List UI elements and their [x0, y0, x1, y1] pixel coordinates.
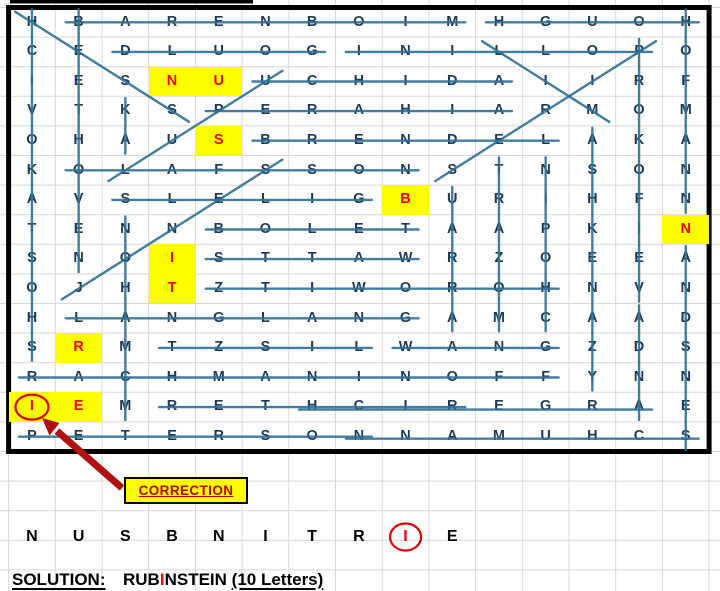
grid-cell[interactable]: B — [55, 8, 102, 38]
solution-letter: I — [242, 523, 289, 551]
grid-cell[interactable]: S — [242, 156, 289, 186]
grid-cell[interactable]: I — [9, 67, 56, 97]
grid-cell[interactable]: T — [149, 274, 196, 304]
grid-cell[interactable]: F — [616, 185, 663, 215]
grid-cell[interactable]: Z — [195, 274, 242, 304]
grid-cell[interactable]: M — [662, 96, 709, 126]
grid-cell[interactable]: C — [336, 392, 383, 422]
solution-letter: U — [55, 523, 102, 551]
grid-cell[interactable]: A — [616, 392, 663, 422]
grid-cell[interactable]: E — [55, 37, 102, 67]
grid-cell[interactable]: S — [195, 126, 242, 156]
grid-cell[interactable]: L — [242, 304, 289, 334]
grid-cell[interactable]: O — [382, 274, 429, 304]
grid-cell[interactable]: N — [55, 244, 102, 274]
grid-cell[interactable]: M — [476, 422, 523, 452]
grid-cell[interactable]: R — [289, 126, 336, 156]
grid-cell[interactable]: P — [195, 96, 242, 126]
grid-cell[interactable]: A — [9, 185, 56, 215]
grid-cell[interactable]: H — [55, 126, 102, 156]
grid-cell[interactable]: B — [382, 185, 429, 215]
grid-cell[interactable]: T — [242, 274, 289, 304]
grid-cell[interactable]: H — [476, 8, 523, 38]
grid-cell[interactable]: N — [382, 126, 429, 156]
grid-cell[interactable]: I — [289, 185, 336, 215]
grid-cell[interactable]: A — [336, 96, 383, 126]
grid-cell[interactable]: I — [382, 392, 429, 422]
grid-cell[interactable]: E — [55, 392, 102, 422]
grid-cell[interactable]: N — [336, 422, 383, 452]
grid-cell[interactable]: D — [662, 304, 709, 334]
grid-cell[interactable]: L — [149, 185, 196, 215]
grid-cell[interactable]: V — [9, 96, 56, 126]
solution-answer-part1: RUB — [123, 570, 160, 589]
grid-cell[interactable]: L — [289, 215, 336, 245]
grid-cell[interactable]: R — [195, 422, 242, 452]
grid-cell[interactable]: N — [662, 274, 709, 304]
grid-cell[interactable]: E — [149, 422, 196, 452]
grid-cell[interactable]: R — [9, 363, 56, 393]
grid-cell[interactable]: L — [55, 304, 102, 334]
grid-cell[interactable]: W — [382, 244, 429, 274]
grid-cell[interactable]: O — [662, 37, 709, 67]
grid-cell[interactable]: L — [522, 126, 569, 156]
correction-label[interactable]: CORRECTION — [124, 477, 248, 504]
grid-cell[interactable]: A — [102, 304, 149, 334]
grid-cell[interactable]: E — [616, 244, 663, 274]
grid-cell[interactable]: E — [476, 126, 523, 156]
grid-cell[interactable]: Z — [476, 244, 523, 274]
solution-letter-count: (10 Letters) — [232, 570, 324, 589]
grid-cell[interactable]: H — [662, 8, 709, 38]
grid-cell[interactable]: C — [522, 304, 569, 334]
grid-cell[interactable]: N — [476, 333, 523, 363]
grid-cell[interactable]: O — [522, 244, 569, 274]
grid-cell[interactable]: W — [382, 333, 429, 363]
grid-cell[interactable]: L — [242, 185, 289, 215]
grid-cell[interactable]: P — [9, 422, 56, 452]
grid-cell[interactable]: F — [476, 363, 523, 393]
grid-cell[interactable]: L — [336, 333, 383, 363]
grid-cell[interactable]: N — [662, 363, 709, 393]
grid-cell[interactable]: E — [476, 392, 523, 422]
grid-cell[interactable]: T — [9, 215, 56, 245]
grid-cell[interactable]: H — [382, 96, 429, 126]
grid-cell[interactable]: I — [289, 274, 336, 304]
grid-cell[interactable]: U — [242, 67, 289, 97]
grid-cell[interactable]: O — [9, 274, 56, 304]
grid-cell[interactable]: O — [9, 126, 56, 156]
grid-cell[interactable]: O — [616, 8, 663, 38]
grid-cell[interactable]: N — [616, 363, 663, 393]
grid-cell[interactable]: E — [195, 185, 242, 215]
grid-cell[interactable]: A — [569, 304, 616, 334]
grid-cell[interactable]: A — [429, 422, 476, 452]
grid-cell[interactable]: S — [102, 67, 149, 97]
grid-cell[interactable]: A — [476, 67, 523, 97]
grid-cell[interactable]: L — [522, 37, 569, 67]
grid-cell[interactable]: U — [522, 422, 569, 452]
grid-cell[interactable]: I — [616, 215, 663, 245]
grid-cell[interactable]: E — [336, 215, 383, 245]
grid-cell[interactable]: C — [102, 363, 149, 393]
grid-cell[interactable]: E — [569, 244, 616, 274]
grid-cell[interactable]: N — [336, 304, 383, 334]
grid-cell[interactable]: E — [242, 96, 289, 126]
top-edge-fragment — [10, 0, 253, 4]
grid-cell[interactable]: E — [55, 215, 102, 245]
grid-cell[interactable]: R — [569, 392, 616, 422]
grid-cell[interactable]: O — [616, 156, 663, 186]
grid-cell[interactable]: A — [429, 304, 476, 334]
grid-cell[interactable]: I — [336, 37, 383, 67]
grid-cell[interactable]: S — [9, 333, 56, 363]
grid-cell[interactable]: N — [242, 8, 289, 38]
grid-cell[interactable]: S — [149, 96, 196, 126]
grid-cell[interactable]: I — [569, 67, 616, 97]
grid-cell[interactable]: R — [149, 392, 196, 422]
grid-cell[interactable]: I — [9, 392, 56, 422]
grid-cell[interactable]: S — [569, 156, 616, 186]
grid-cell[interactable]: S — [662, 422, 709, 452]
grid-cell[interactable]: O — [289, 422, 336, 452]
grid-cell[interactable]: M — [569, 96, 616, 126]
grid-cell[interactable]: N — [522, 156, 569, 186]
grid-cell[interactable]: K — [616, 126, 663, 156]
grid-cell[interactable]: L — [149, 37, 196, 67]
grid-cell[interactable]: S — [9, 244, 56, 274]
grid-cell[interactable]: H — [149, 363, 196, 393]
grid-cell[interactable]: T — [55, 96, 102, 126]
grid-cell[interactable]: S — [662, 333, 709, 363]
worksheet-canvas: HBARENBOIMHGUOHCEDLUOGINILLOPOIESNUUCHID… — [0, 0, 720, 591]
grid-cell[interactable]: H — [336, 67, 383, 97]
grid-cell[interactable]: K — [569, 215, 616, 245]
grid-cell[interactable]: A — [476, 96, 523, 126]
solution-letter: N — [195, 523, 242, 551]
grid-cell[interactable]: Y — [569, 363, 616, 393]
grid-cell[interactable]: E — [336, 126, 383, 156]
solution-letter: I — [382, 523, 429, 551]
grid-cell[interactable]: O — [429, 363, 476, 393]
grid-cell[interactable]: L — [102, 156, 149, 186]
grid-cell[interactable]: H — [289, 392, 336, 422]
solution-letter: N — [9, 523, 56, 551]
grid-cell[interactable]: W — [336, 274, 383, 304]
grid-cell[interactable]: B — [195, 215, 242, 245]
solution-answer: RUBINSTEIN (10 Letters) — [123, 570, 323, 590]
grid-cell[interactable]: A — [429, 333, 476, 363]
grid-cell[interactable]: V — [55, 185, 102, 215]
grid-cell[interactable]: P — [616, 37, 663, 67]
grid-cell[interactable]: S — [289, 156, 336, 186]
grid-cell[interactable]: T — [382, 215, 429, 245]
grid-cell[interactable]: N — [662, 185, 709, 215]
grid-cell[interactable]: C — [9, 37, 56, 67]
grid-cell[interactable]: F — [195, 156, 242, 186]
grid-cell[interactable]: I — [429, 96, 476, 126]
grid-cell[interactable]: S — [242, 333, 289, 363]
grid-cell[interactable]: S — [242, 422, 289, 452]
correction-label-text: CORRECTION — [139, 483, 234, 498]
grid-cell[interactable]: H — [522, 274, 569, 304]
grid-cell[interactable]: F — [522, 363, 569, 393]
grid-cell[interactable]: M — [102, 333, 149, 363]
grid-cell[interactable]: A — [102, 8, 149, 38]
grid-cell[interactable]: T — [289, 244, 336, 274]
grid-cell[interactable]: O — [476, 274, 523, 304]
grid-cell[interactable]: A — [429, 215, 476, 245]
grid-cell[interactable]: R — [429, 392, 476, 422]
grid-cell[interactable]: M — [102, 392, 149, 422]
grid-cell[interactable]: E — [55, 67, 102, 97]
grid-cell[interactable]: O — [102, 244, 149, 274]
grid-cell[interactable]: H — [569, 185, 616, 215]
grid-cell[interactable]: G — [522, 392, 569, 422]
solution-letter: B — [149, 523, 196, 551]
grid-cell[interactable]: N — [102, 215, 149, 245]
grid-cell[interactable]: G — [522, 333, 569, 363]
grid-cell[interactable]: O — [616, 96, 663, 126]
solution-letter: E — [429, 523, 476, 551]
grid-cell[interactable]: N — [289, 363, 336, 393]
grid-cell[interactable]: B — [289, 8, 336, 38]
grid-cell[interactable]: S — [102, 185, 149, 215]
grid-cell[interactable]: A — [569, 126, 616, 156]
grid-cell[interactable]: R — [429, 244, 476, 274]
grid-cell[interactable]: N — [662, 215, 709, 245]
grid-cell[interactable]: A — [476, 215, 523, 245]
grid-cell[interactable]: N — [149, 67, 196, 97]
grid-cell[interactable]: N — [569, 274, 616, 304]
grid-cell[interactable]: I — [382, 67, 429, 97]
grid-cell[interactable]: I — [522, 67, 569, 97]
grid-cell[interactable]: N — [662, 156, 709, 186]
solution-label-text: SOLUTION: — [12, 570, 106, 589]
grid-cell[interactable]: E — [662, 392, 709, 422]
grid-cell[interactable]: T — [476, 156, 523, 186]
grid-cell[interactable]: R — [616, 67, 663, 97]
grid-cell[interactable]: H — [9, 304, 56, 334]
grid-cell[interactable]: I — [429, 37, 476, 67]
grid-cell[interactable]: Z — [195, 333, 242, 363]
grid-cell[interactable]: H — [102, 274, 149, 304]
grid-cell[interactable]: S — [429, 156, 476, 186]
grid-cell[interactable]: R — [522, 96, 569, 126]
grid-cell[interactable]: V — [616, 274, 663, 304]
grid-cell[interactable]: M — [429, 8, 476, 38]
grid-cell[interactable]: M — [476, 304, 523, 334]
grid-cell[interactable]: D — [429, 67, 476, 97]
grid-cell[interactable]: D — [102, 37, 149, 67]
grid-cell[interactable]: N — [382, 37, 429, 67]
grid-cell[interactable]: I — [336, 363, 383, 393]
grid-cell[interactable]: T — [242, 244, 289, 274]
grid-cell[interactable]: H — [9, 8, 56, 38]
grid-cell[interactable]: R — [149, 8, 196, 38]
grid-cell[interactable]: K — [102, 96, 149, 126]
grid-cell[interactable]: I — [522, 185, 569, 215]
grid-cell[interactable]: A — [149, 156, 196, 186]
grid-cell[interactable]: L — [476, 37, 523, 67]
grid-cell[interactable]: F — [662, 67, 709, 97]
grid-cell[interactable]: K — [9, 156, 56, 186]
grid-cell[interactable]: U — [429, 185, 476, 215]
grid-cell[interactable]: C — [289, 67, 336, 97]
grid-cell[interactable]: A — [336, 244, 383, 274]
grid-cell[interactable]: U — [195, 37, 242, 67]
solution-letter: T — [289, 523, 336, 551]
grid-cell[interactable]: S — [195, 244, 242, 274]
grid-cell[interactable]: E — [55, 422, 102, 452]
grid-cell[interactable]: N — [149, 304, 196, 334]
grid-cell[interactable]: D — [429, 126, 476, 156]
solution-label: SOLUTION: — [12, 570, 106, 590]
grid-cell[interactable]: N — [382, 363, 429, 393]
grid-cell[interactable]: Z — [569, 333, 616, 363]
grid-cell[interactable]: O — [336, 156, 383, 186]
grid-cell[interactable]: A — [662, 126, 709, 156]
grid-cell[interactable]: R — [55, 333, 102, 363]
grid-cell[interactable]: O — [55, 156, 102, 186]
grid-cell[interactable]: T — [102, 422, 149, 452]
grid-cell[interactable]: I — [382, 8, 429, 38]
grid-cell[interactable]: A — [102, 126, 149, 156]
grid-cell[interactable]: N — [382, 422, 429, 452]
grid-cell[interactable]: R — [429, 274, 476, 304]
grid-cell[interactable]: A — [662, 244, 709, 274]
grid-cell[interactable]: R — [289, 96, 336, 126]
grid-cell[interactable]: U — [195, 67, 242, 97]
grid-cell[interactable]: A — [289, 304, 336, 334]
grid-cell[interactable]: G — [195, 304, 242, 334]
grid-cell[interactable]: T — [242, 392, 289, 422]
grid-cell[interactable]: O — [242, 37, 289, 67]
grid-cell[interactable]: H — [569, 422, 616, 452]
solution-answer-part2: NSTEIN — [165, 570, 227, 589]
grid-cell[interactable]: N — [149, 215, 196, 245]
grid-cell[interactable]: G — [289, 37, 336, 67]
grid-cell[interactable]: O — [336, 8, 383, 38]
grid-cell[interactable]: I — [289, 333, 336, 363]
grid-cell[interactable]: O — [242, 215, 289, 245]
grid-cell[interactable]: A — [242, 363, 289, 393]
grid-cell[interactable]: U — [569, 8, 616, 38]
grid-cell[interactable]: B — [242, 126, 289, 156]
grid-cell[interactable]: U — [149, 126, 196, 156]
grid-cell[interactable]: J — [55, 274, 102, 304]
grid-cell[interactable]: C — [616, 422, 663, 452]
grid-cell[interactable]: G — [522, 8, 569, 38]
grid-cell[interactable]: R — [476, 185, 523, 215]
grid-cell[interactable]: E — [195, 8, 242, 38]
grid-cell[interactable]: G — [382, 304, 429, 334]
grid-cell[interactable]: E — [195, 392, 242, 422]
grid-cell[interactable]: T — [149, 333, 196, 363]
grid-cell[interactable]: G — [336, 185, 383, 215]
grid-cell[interactable]: P — [522, 215, 569, 245]
solution-letter: S — [102, 523, 149, 551]
solution-letter: R — [336, 523, 383, 551]
grid-cell[interactable]: M — [195, 363, 242, 393]
grid-cell[interactable]: D — [616, 333, 663, 363]
grid-cell[interactable]: A — [55, 363, 102, 393]
grid-cell[interactable]: I — [149, 244, 196, 274]
grid-cell[interactable]: O — [569, 37, 616, 67]
grid-cell[interactable]: N — [382, 156, 429, 186]
grid-cell[interactable]: A — [616, 304, 663, 334]
